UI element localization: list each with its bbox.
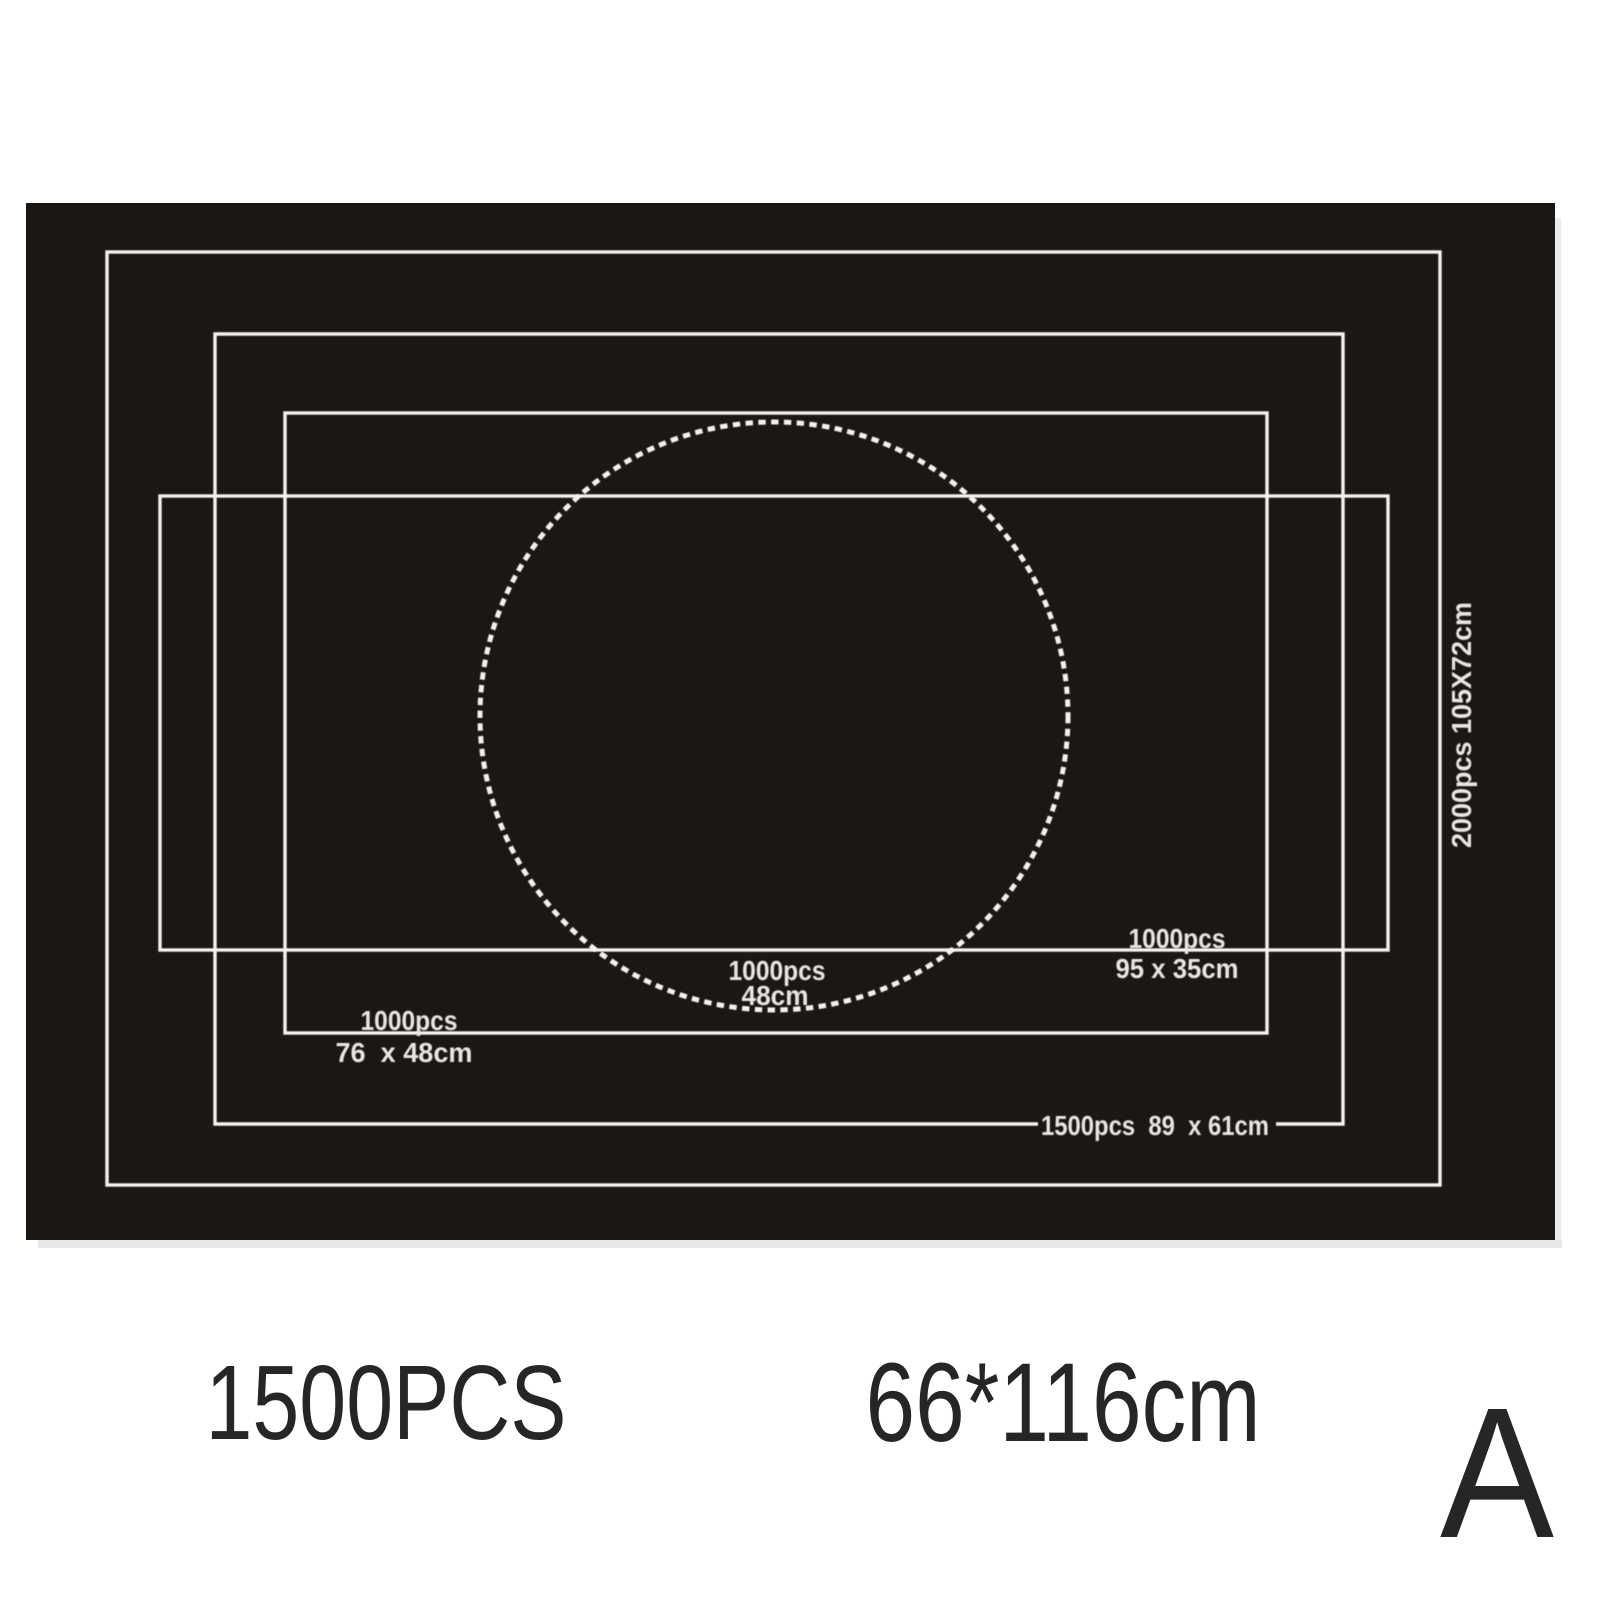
- svg-text:1000pcs: 1000pcs: [1129, 923, 1226, 954]
- svg-text:1000pcs: 1000pcs: [361, 1005, 458, 1036]
- svg-text:48cm: 48cm: [742, 980, 809, 1011]
- svg-text:95 x 35cm: 95 x 35cm: [1116, 953, 1239, 984]
- svg-text:1500pcs 89 x 61cm: 1500pcs 89 x 61cm: [1041, 1110, 1269, 1141]
- svg-text:2000pcs 105X72cm: 2000pcs 105X72cm: [1446, 602, 1477, 848]
- svg-text:76 x 48cm: 76 x 48cm: [336, 1037, 473, 1068]
- svg-text:A: A: [1440, 1370, 1554, 1577]
- svg-text:66*116cm: 66*116cm: [866, 1340, 1261, 1465]
- svg-text:1500PCS: 1500PCS: [206, 1344, 567, 1462]
